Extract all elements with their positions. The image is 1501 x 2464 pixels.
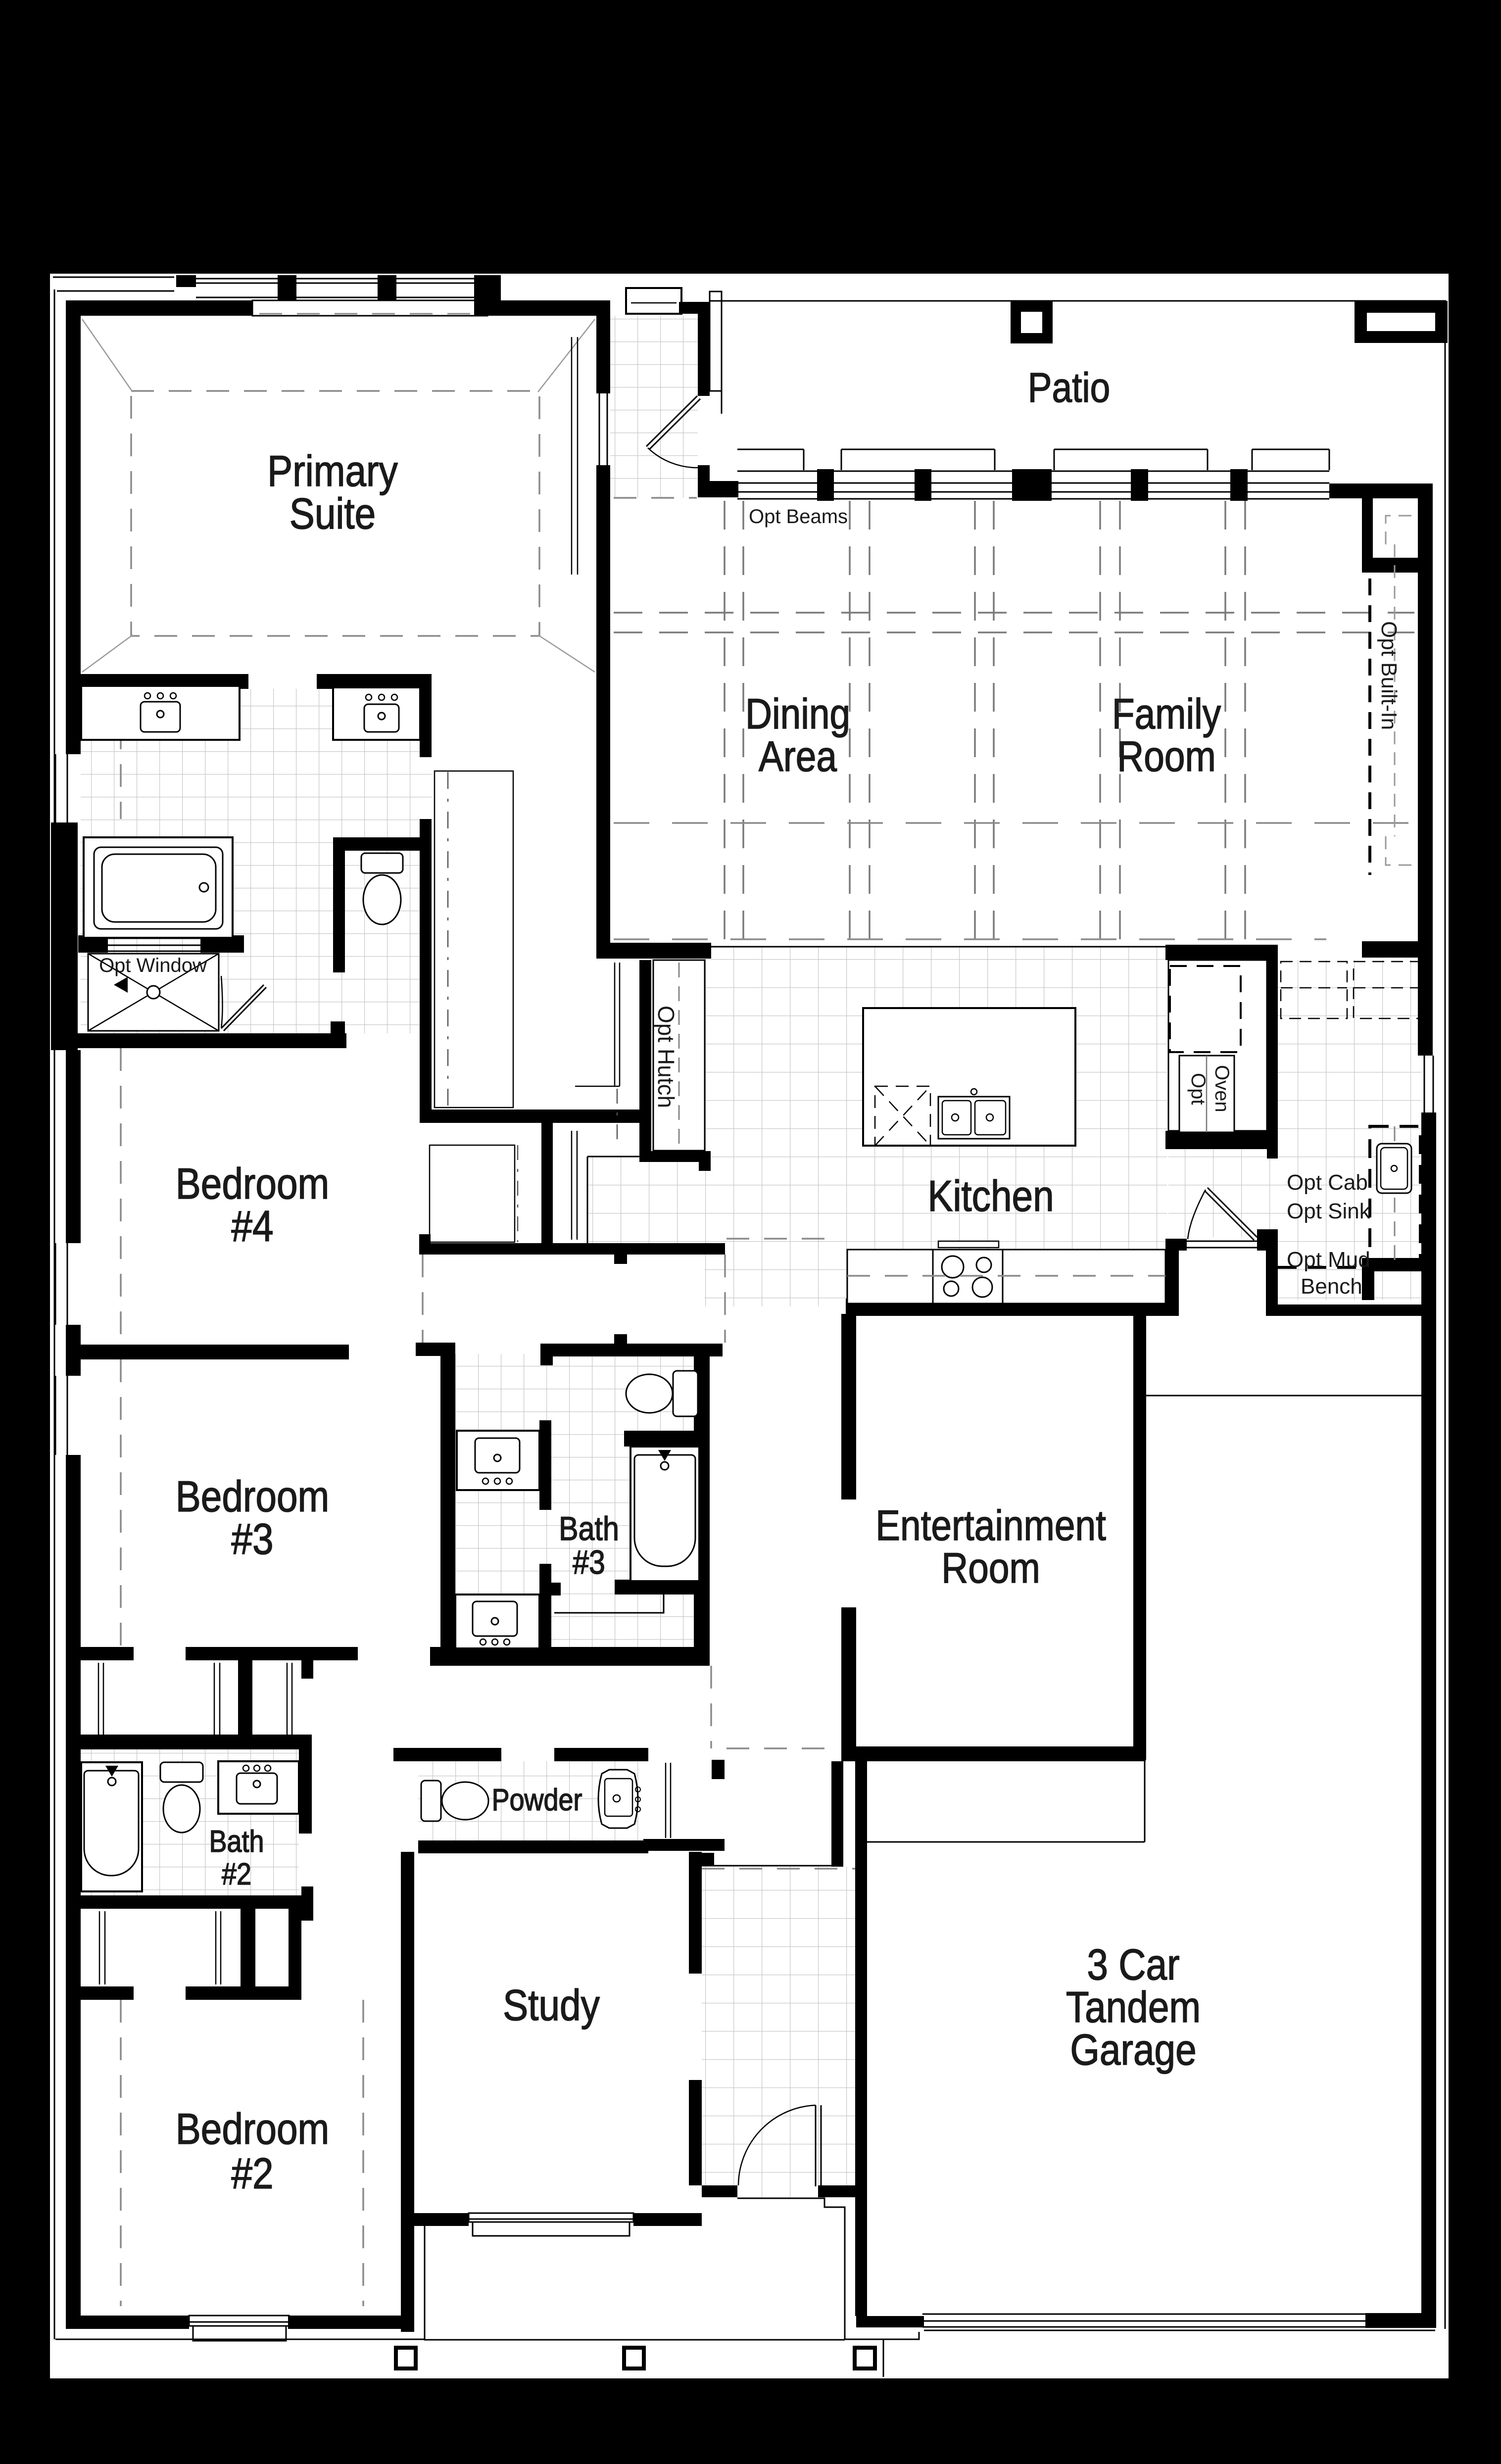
svg-text:Area: Area [759,733,837,780]
svg-text:Tandem: Tandem [1066,1983,1201,2031]
svg-text:Opt Window: Opt Window [99,955,207,976]
svg-text:Family: Family [1112,690,1221,738]
svg-text:Bath: Bath [209,1825,264,1859]
svg-text:Opt Built-In: Opt Built-In [1377,621,1401,730]
svg-text:Powder: Powder [492,1783,582,1817]
svg-text:Room: Room [941,1545,1040,1592]
svg-text:Kitchen: Kitchen [927,1172,1054,1220]
svg-text:Dining: Dining [745,690,850,738]
svg-text:Bench: Bench [1301,1274,1362,1299]
svg-text:#3: #3 [231,1515,273,1563]
svg-text:Opt Cab: Opt Cab [1287,1170,1368,1195]
svg-text:#2: #2 [222,1857,251,1891]
svg-text:Patio: Patio [1028,364,1111,411]
svg-text:Opt Sink: Opt Sink [1287,1199,1371,1223]
svg-text:Bath: Bath [559,1509,619,1547]
svg-text:Study: Study [503,1981,600,2029]
svg-text:Room: Room [1117,733,1216,780]
svg-text:Bedroom: Bedroom [176,1160,330,1208]
svg-text:Opt Mud: Opt Mud [1287,1248,1370,1272]
svg-text:3 Car: 3 Car [1087,1940,1179,1989]
svg-text:#2: #2 [231,2149,273,2198]
svg-text:Opt Hutch: Opt Hutch [653,1006,679,1108]
svg-text:Primary: Primary [267,447,398,495]
svg-text:Opt: Opt [1187,1073,1209,1105]
svg-text:Bedroom: Bedroom [176,1472,330,1521]
svg-text:#4: #4 [231,1202,273,1251]
svg-text:Bedroom: Bedroom [176,2105,330,2153]
svg-text:Entertainment: Entertainment [875,1502,1106,1549]
svg-text:#3: #3 [573,1543,605,1581]
svg-text:Opt Beams: Opt Beams [749,506,848,528]
svg-text:Oven: Oven [1211,1065,1233,1112]
svg-text:Suite: Suite [290,489,376,538]
svg-text:Garage: Garage [1070,2026,1196,2074]
